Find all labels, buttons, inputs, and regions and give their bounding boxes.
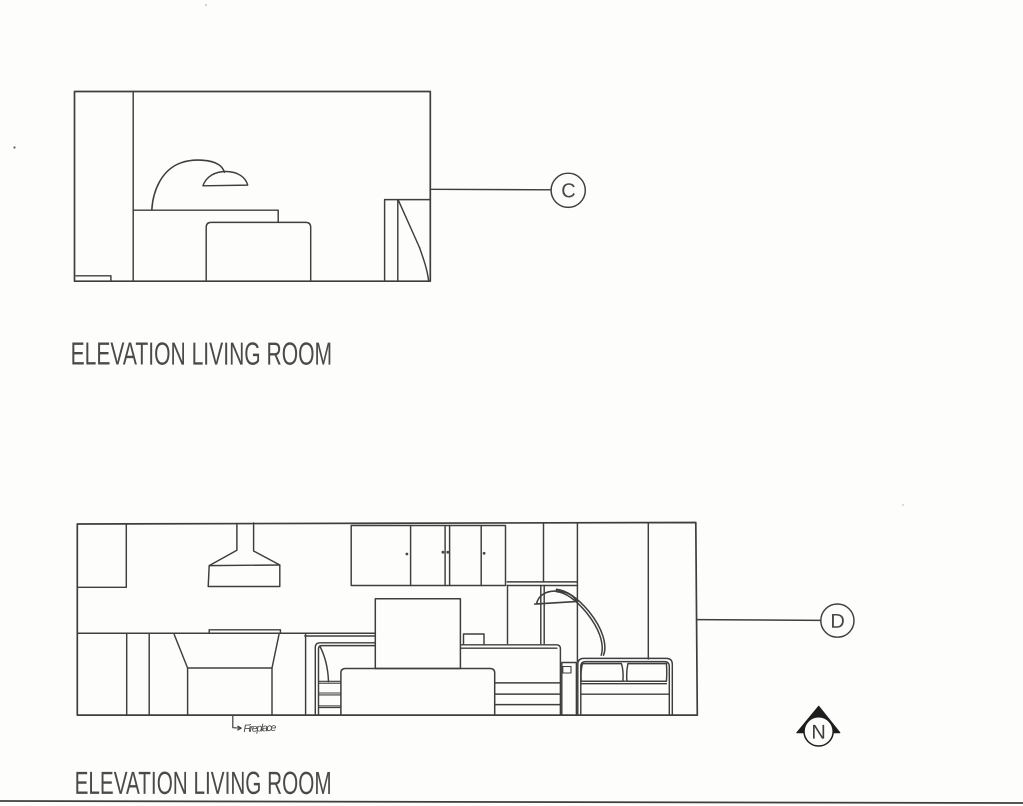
svg-text:Fireplace: Fireplace [243, 722, 277, 735]
svg-text:C: C [561, 180, 575, 202]
svg-text:D: D [830, 611, 844, 633]
svg-text:ELEVATION LIVING ROOM: ELEVATION LIVING ROOM [75, 765, 332, 801]
svg-text:N: N [811, 722, 825, 744]
svg-text:ELEVATION LIVING ROOM: ELEVATION LIVING ROOM [71, 336, 333, 372]
